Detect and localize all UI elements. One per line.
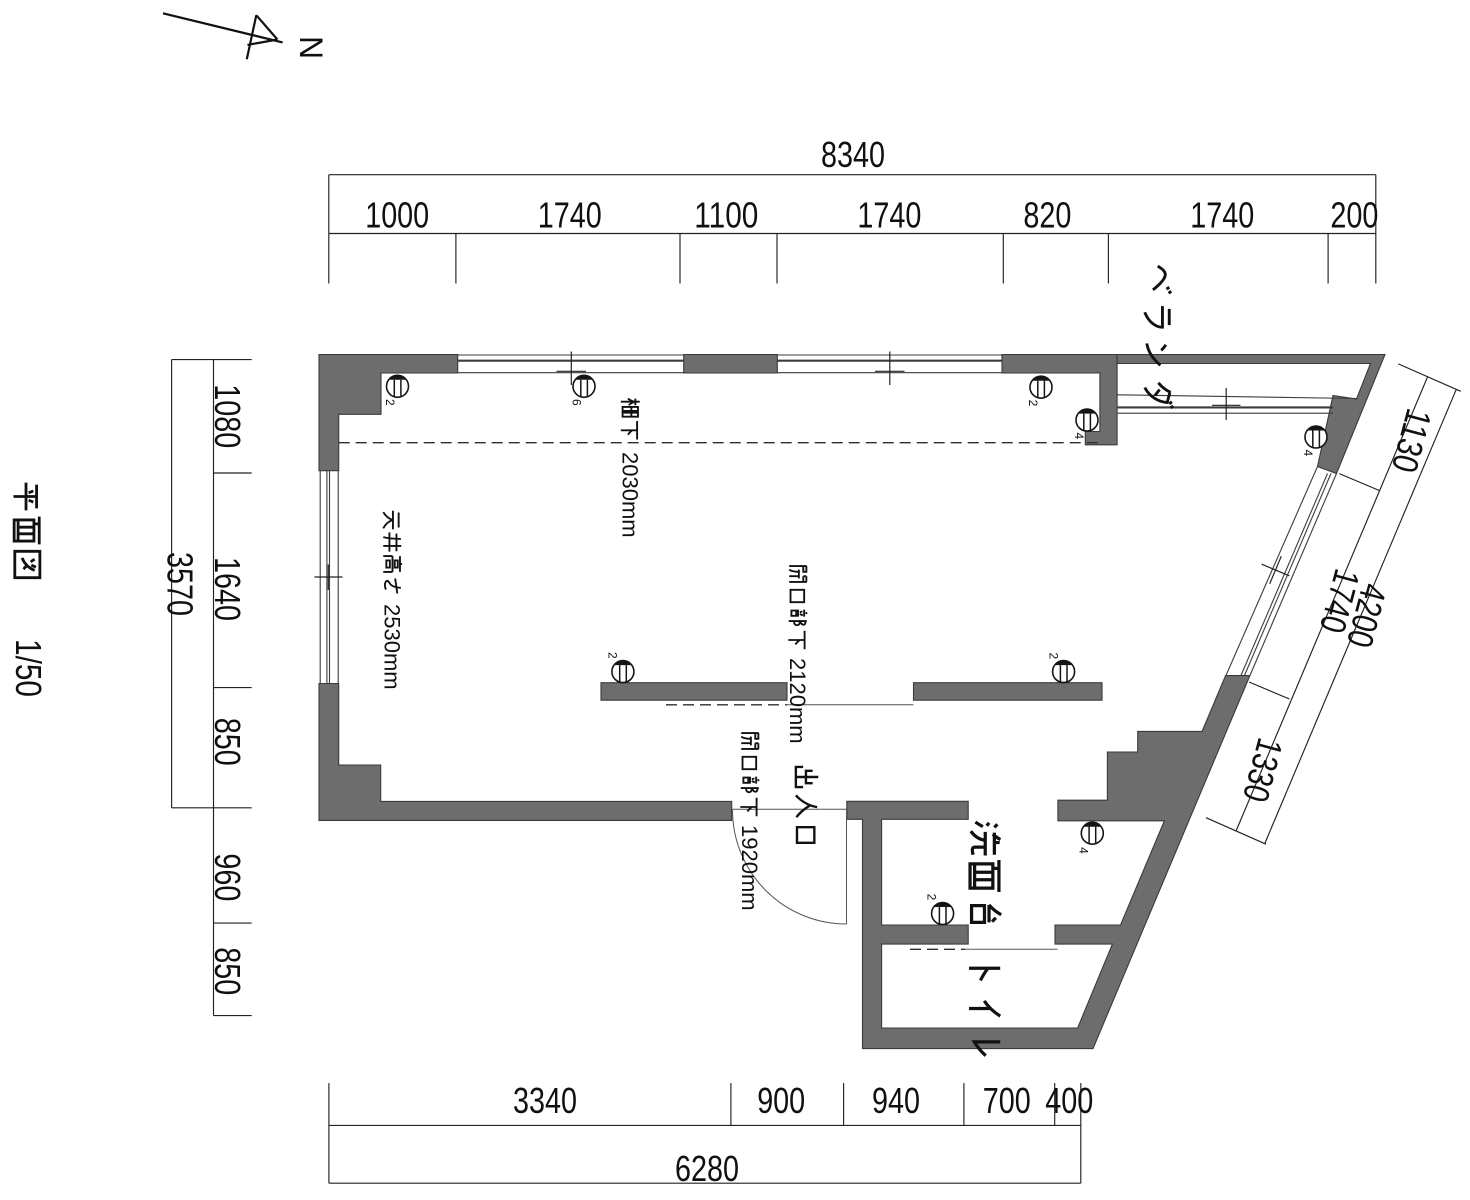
- svg-text:1740: 1740: [1190, 195, 1254, 236]
- svg-text:N: N: [293, 36, 329, 59]
- svg-text:820: 820: [1023, 195, 1071, 236]
- svg-text:2: 2: [383, 399, 397, 406]
- svg-text:2: 2: [1026, 400, 1040, 407]
- svg-text:1920mm: 1920mm: [737, 825, 762, 911]
- svg-text:1130: 1130: [1384, 405, 1440, 477]
- svg-text:1740: 1740: [857, 195, 921, 236]
- svg-text:1100: 1100: [694, 195, 758, 236]
- svg-text:2: 2: [606, 652, 620, 659]
- svg-text:900: 900: [757, 1080, 805, 1121]
- svg-text:4: 4: [1072, 433, 1086, 440]
- svg-text:2: 2: [1047, 652, 1061, 659]
- svg-text:1740: 1740: [538, 195, 602, 236]
- svg-text:3340: 3340: [513, 1080, 577, 1121]
- svg-text:2530mm: 2530mm: [380, 604, 405, 690]
- svg-text:1/50: 1/50: [8, 639, 49, 697]
- svg-text:1330: 1330: [1235, 734, 1291, 806]
- svg-text:4: 4: [1077, 847, 1091, 854]
- svg-text:700: 700: [983, 1080, 1031, 1121]
- svg-text:1080: 1080: [207, 384, 248, 448]
- svg-text:400: 400: [1045, 1080, 1093, 1121]
- svg-text:1000: 1000: [365, 195, 429, 236]
- svg-text:2: 2: [925, 894, 939, 901]
- svg-text:3570: 3570: [160, 552, 201, 616]
- svg-text:940: 940: [872, 1080, 920, 1121]
- svg-text:850: 850: [207, 947, 248, 995]
- svg-text:6: 6: [570, 399, 584, 406]
- svg-text:2030mm: 2030mm: [618, 452, 643, 538]
- svg-text:850: 850: [207, 718, 248, 766]
- svg-text:4: 4: [1301, 449, 1315, 456]
- svg-text:8340: 8340: [821, 134, 885, 175]
- svg-text:200: 200: [1330, 195, 1378, 236]
- svg-text:6280: 6280: [675, 1148, 739, 1189]
- svg-text:960: 960: [207, 853, 248, 901]
- svg-text:1640: 1640: [207, 557, 248, 621]
- svg-text:2120mm: 2120mm: [785, 658, 810, 744]
